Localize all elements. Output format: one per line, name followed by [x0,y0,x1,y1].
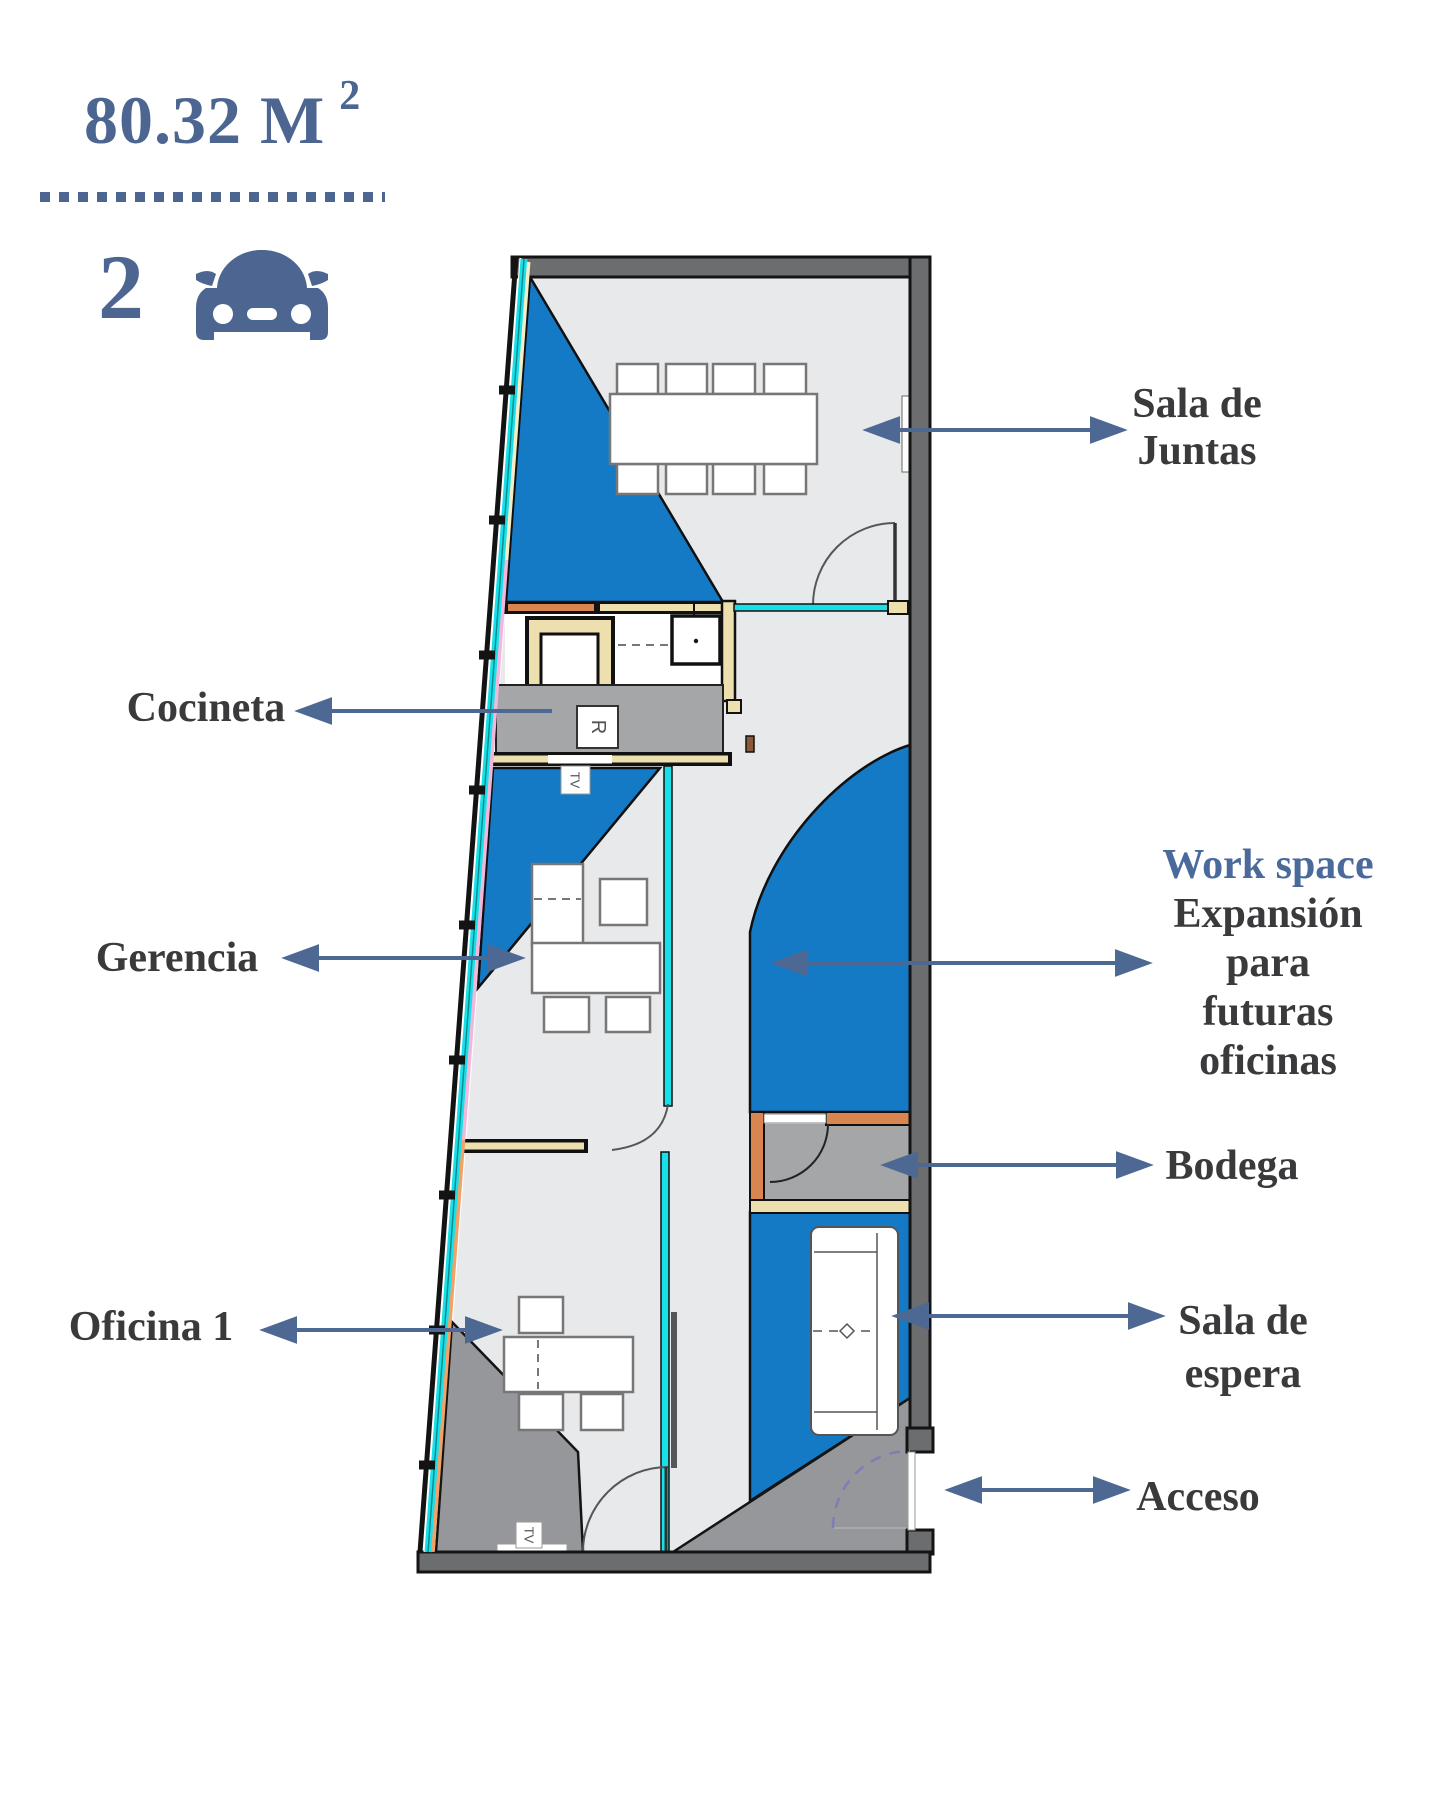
tv-kitchen-label: TV [568,772,583,789]
arrow-acceso [950,1479,1125,1501]
glass-partition-juntas [734,604,890,611]
tv-office-label: TV [522,1527,537,1544]
refrigerator-label: R [587,720,609,734]
sofa [811,1227,898,1435]
work-space-title: Work space [1162,841,1373,890]
wall-right [910,257,930,1428]
conference-table-set [610,364,817,494]
label-gerencia: Gerencia [96,935,259,982]
wall-bottom [418,1552,930,1572]
glass-partition-gerencia [664,766,672,1106]
label-cocineta: Cocineta [127,685,286,732]
arrow-sala-de-espera [897,1305,1160,1327]
label-work-space: Work space Expansión para futuras oficin… [1162,841,1373,1086]
label-sala-de-juntas: Sala de Juntas [1132,381,1262,475]
label-acceso: Acceso [1136,1474,1260,1521]
label-oficina-1: Oficina 1 [69,1304,234,1351]
wall-top [512,257,930,277]
room-bodega [750,1112,910,1213]
room-cocineta: R TV [488,601,754,794]
label-bodega: Bodega [1165,1143,1298,1190]
label-sala-de-espera: Sala de espera [1178,1295,1308,1401]
floor-plan-infographic: 80.32 M2 2 [0,0,1440,1800]
